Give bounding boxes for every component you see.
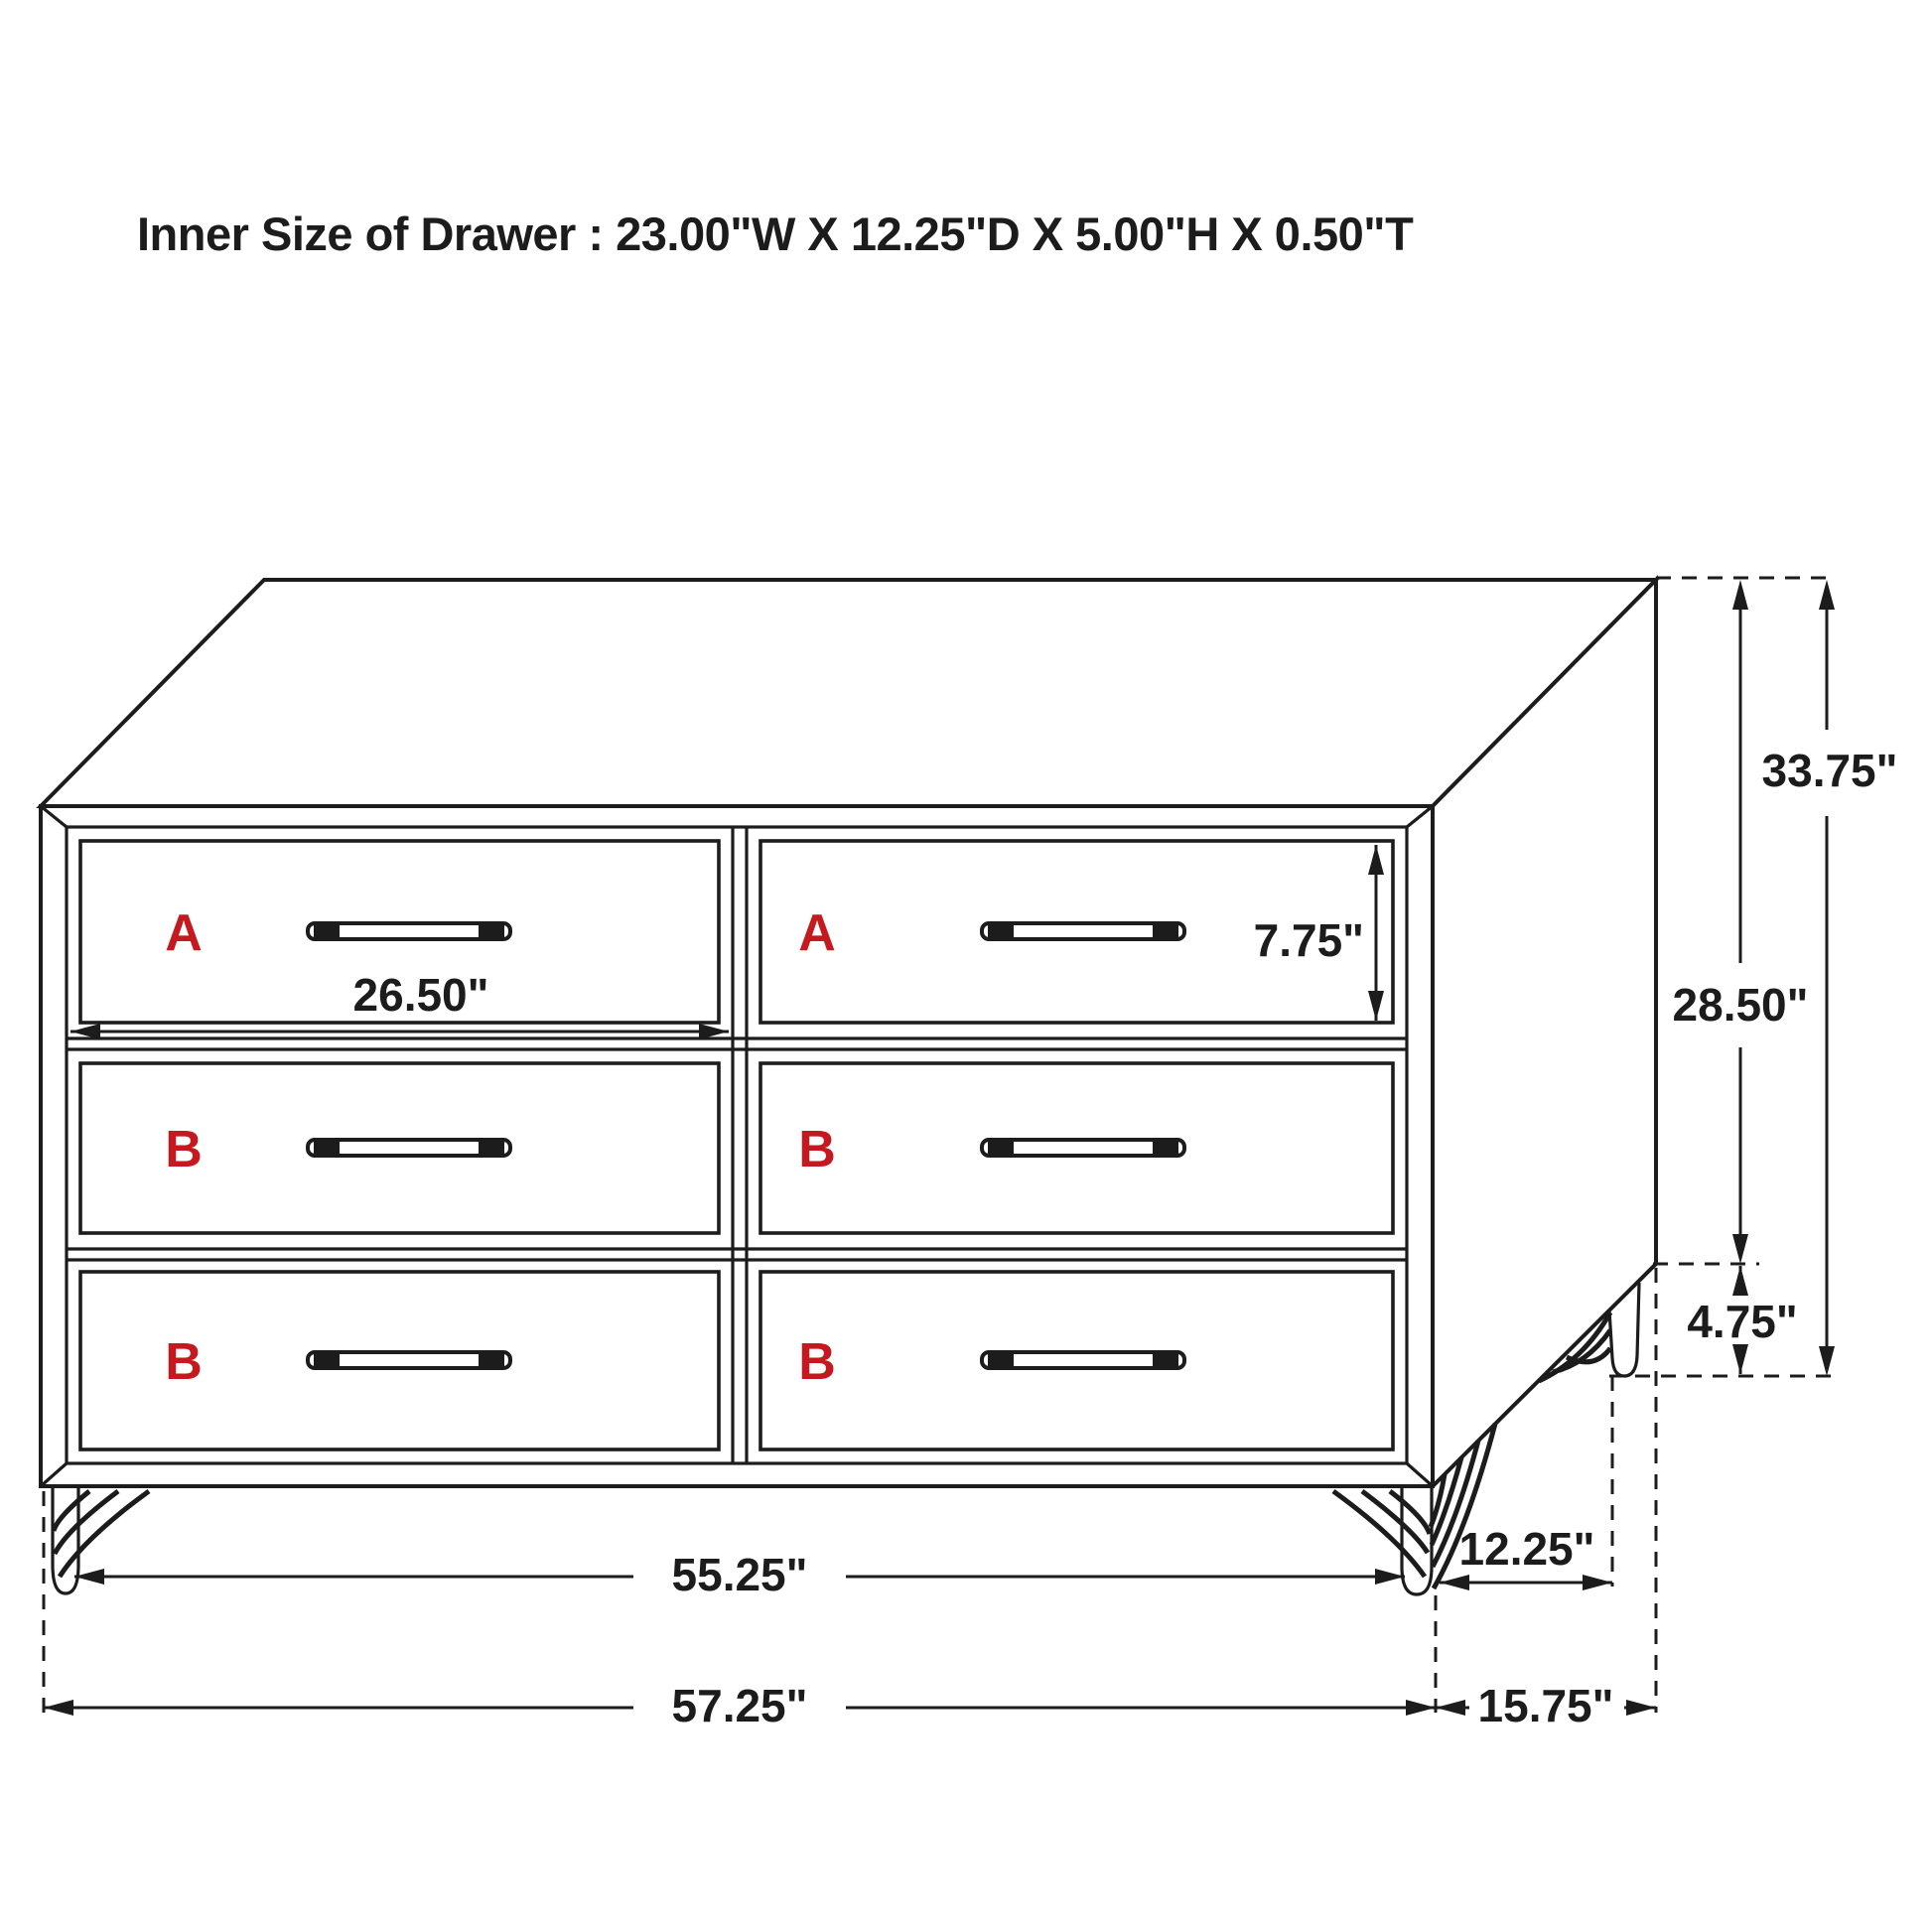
dimension-label-front-leg-span: 55.25" [672,1549,808,1600]
dimension-label-total-depth: 15.75" [1478,1680,1614,1731]
drawer-letter-middle-right: B [798,1121,836,1178]
drawer-handle [308,1139,510,1157]
diagram-page: Inner Size of Drawer : 23.00"W X 12.25"D… [0,0,1932,1932]
dimension-label-total-width: 57.25" [672,1680,808,1731]
drawer-handle [308,1351,510,1369]
dresser-dimension-diagram: Inner Size of Drawer : 23.00"W X 12.25"D… [0,0,1932,1932]
drawer-letter-middle-left: B [165,1121,203,1178]
diagram-title: Inner Size of Drawer : 23.00"W X 12.25"D… [137,207,1414,260]
dimension-label-side-leg-span: 12.25" [1459,1523,1595,1575]
dimension-label-total-height: 33.75" [1762,745,1898,796]
dimension-label-drawer-width: 26.50" [353,969,489,1021]
top-face [41,580,1656,806]
drawer-handle [308,922,510,940]
drawer-handle [982,1351,1184,1369]
dimension-label-leg-height: 4.75" [1687,1296,1797,1347]
drawer-letter-top-right: A [798,904,836,962]
drawer-letter-top-left: A [165,904,203,962]
drawer-letter-bottom-left: B [165,1333,203,1391]
drawer-handle [982,922,1184,940]
dimension-label-drawer-height: 7.75" [1254,914,1364,966]
dimension-label-body-height: 28.50" [1673,979,1809,1031]
drawer-letter-bottom-right: B [798,1333,836,1391]
drawer-handle [982,1139,1184,1157]
